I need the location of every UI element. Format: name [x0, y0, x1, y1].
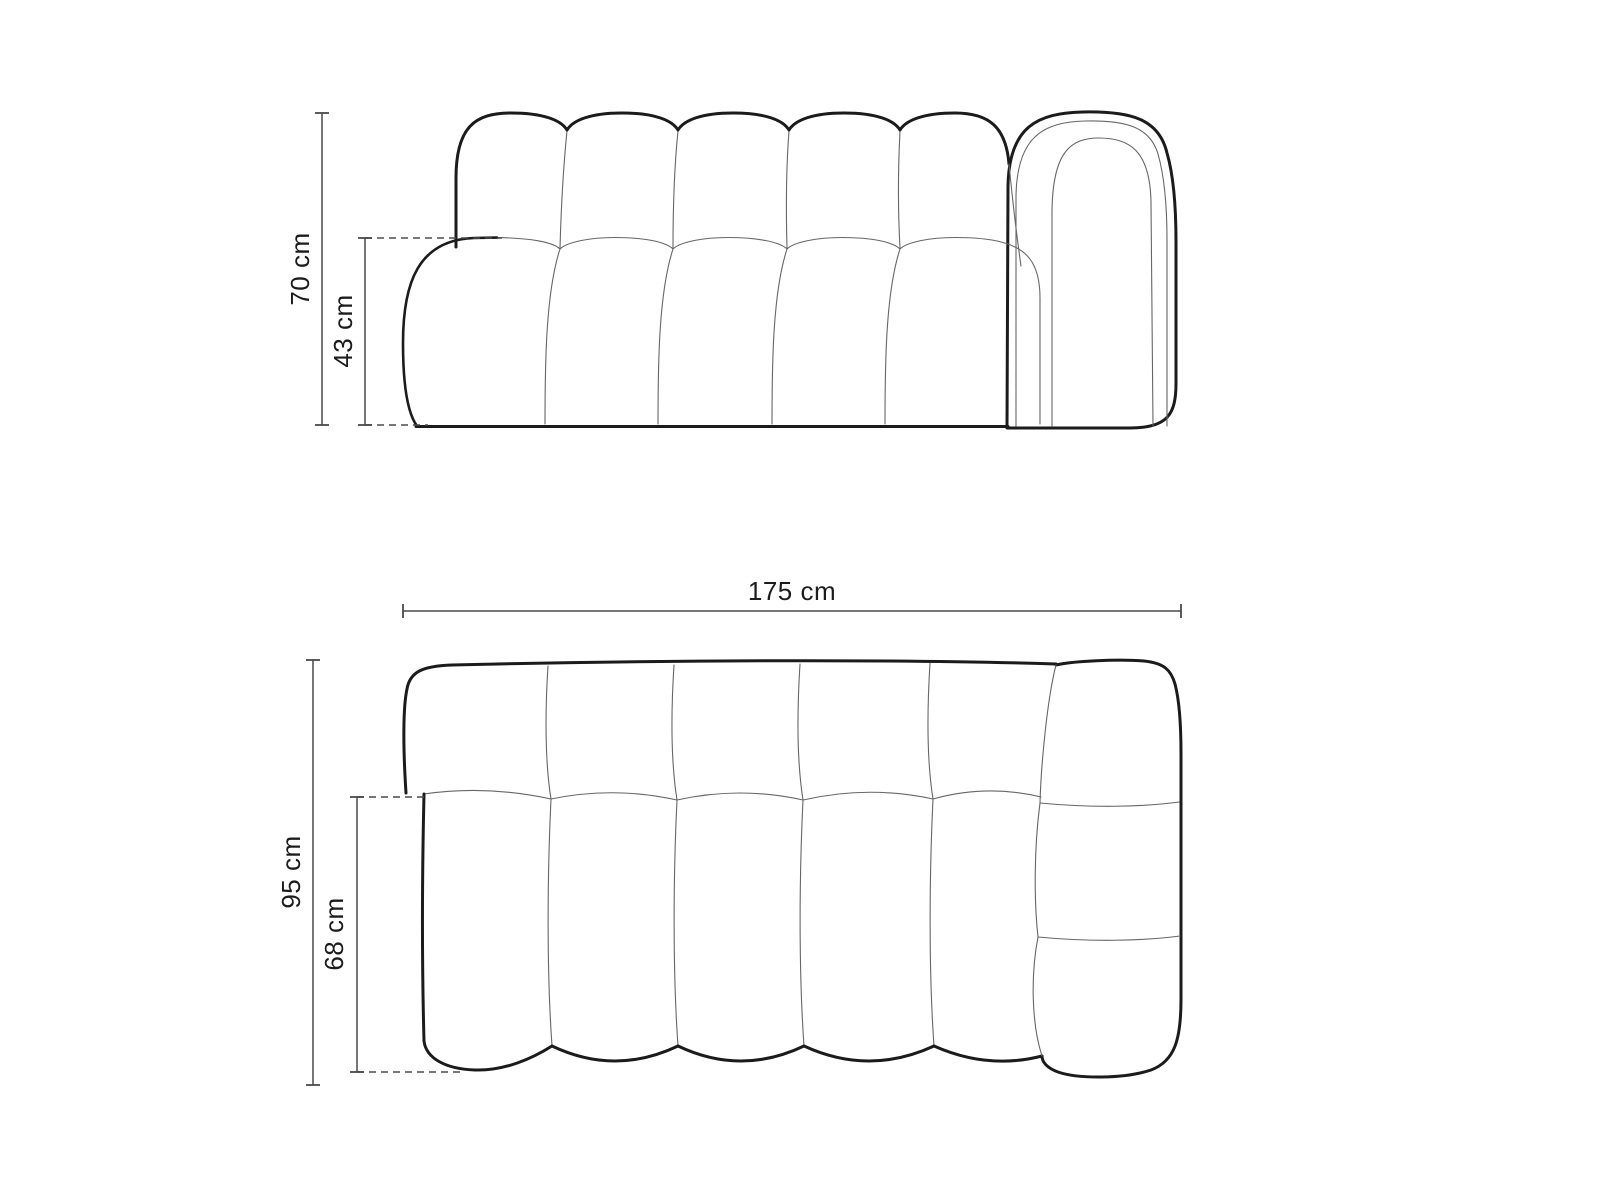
- seat-seam: [545, 249, 560, 424]
- back-section-seam: [798, 664, 803, 800]
- seat-seam: [772, 249, 787, 424]
- top-backrest-seams: [424, 663, 1041, 800]
- backrest-seam: [786, 131, 789, 248]
- diagram-svg: 70 cm 43 cm: [0, 0, 1600, 1200]
- top-back-outline: [404, 661, 1056, 793]
- seat-depth-label: 68 cm: [319, 897, 349, 970]
- height-label: 70 cm: [285, 232, 315, 305]
- seat-seam: [658, 249, 673, 424]
- seat-channel-seam: [930, 799, 934, 1046]
- seat-front-scallop: [804, 1046, 934, 1061]
- top-view: 175 cm 95 cm 68 cm: [276, 576, 1181, 1085]
- top-body-outline: [404, 661, 1056, 1070]
- width-label: 175 cm: [748, 576, 836, 606]
- backrest-seam: [673, 131, 678, 248]
- back-section-seam: [672, 665, 677, 800]
- seat-scallop-top: [497, 238, 1040, 425]
- armrest-inner-edge: [1033, 665, 1056, 1056]
- seat-channel-seam: [674, 800, 678, 1046]
- front-armrest: [1007, 112, 1176, 428]
- back-section-seam: [546, 666, 551, 799]
- seat-left-edge: [403, 238, 497, 426]
- front-height-dimension: 70 cm: [285, 113, 329, 425]
- front-view: 70 cm 43 cm: [285, 112, 1176, 428]
- top-seat-depth-dimension: 68 cm: [319, 797, 460, 1072]
- seat-channel-seam: [548, 799, 552, 1046]
- top-depth-dimension: 95 cm: [276, 660, 320, 1085]
- armrest-inner-panel: [1052, 138, 1153, 426]
- backrest-seam: [899, 131, 901, 248]
- top-seat-left-edge: [423, 794, 553, 1070]
- backrest-scallop-top: [456, 113, 1009, 247]
- armrest-segment-divider: [1040, 802, 1179, 806]
- back-seat-boundary: [424, 790, 1041, 800]
- back-section-seam: [928, 663, 933, 799]
- seat-cushion-fill: [926, 238, 1040, 425]
- top-seat-seams: [548, 799, 934, 1046]
- front-backrest-seams: [560, 131, 900, 248]
- seat-seam: [885, 249, 900, 424]
- armrest-segment-divider: [1038, 936, 1180, 940]
- seat-height-label: 43 cm: [328, 294, 358, 367]
- depth-label: 95 cm: [276, 835, 306, 908]
- armrest-middle-contour: [1016, 121, 1167, 426]
- seat-front-scallop: [552, 1046, 678, 1061]
- seat-front-scallop: [678, 1046, 804, 1061]
- sofa-dimension-diagram: 70 cm 43 cm: [0, 0, 1600, 1200]
- backrest-edge-behind-arm: [1009, 164, 1021, 266]
- armrest-outer-edge: [1042, 660, 1181, 1077]
- front-seat-cushions: [497, 238, 1040, 425]
- top-armrest: [1033, 660, 1181, 1077]
- front-backrest-outline: [456, 113, 1009, 247]
- backrest-seam: [560, 131, 567, 248]
- seat-front-scallop: [934, 1046, 1042, 1061]
- top-width-dimension: 175 cm: [403, 576, 1181, 618]
- seat-channel-seam: [800, 800, 804, 1046]
- armrest-outer-edge: [1007, 112, 1176, 428]
- front-seat-height-dimension: 43 cm: [328, 238, 502, 425]
